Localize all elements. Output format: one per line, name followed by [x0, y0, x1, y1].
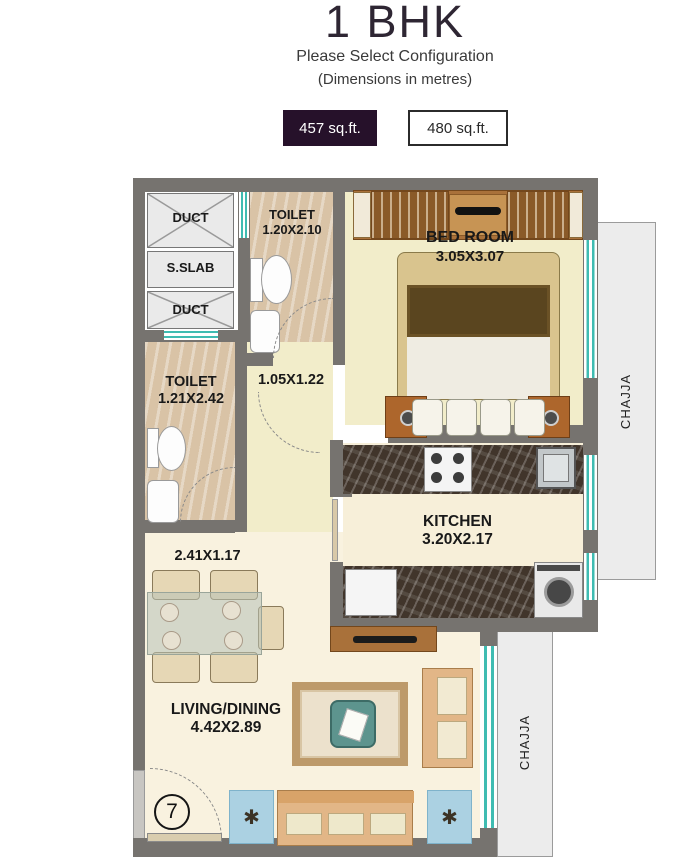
fridge [345, 569, 397, 616]
pillow [446, 399, 477, 436]
toilet-top-bowl [261, 255, 292, 304]
bed-sheet [407, 337, 550, 399]
magazine [338, 708, 369, 742]
plate-icon [162, 631, 181, 650]
toilet-left-washbasin [147, 480, 179, 523]
plate-icon [224, 631, 243, 650]
armchair-cushion [437, 721, 467, 759]
kitchen-door-leaf [332, 499, 338, 561]
plate-icon [160, 603, 179, 622]
wall-living-right-bottom [480, 828, 497, 840]
window-living-right [481, 646, 497, 828]
duct-bottom-label: DUCT [147, 302, 234, 317]
plant-icon: ✱ [441, 805, 458, 830]
sofa-back [278, 791, 414, 803]
window-toilet-top [239, 192, 249, 238]
coffee-table [330, 700, 376, 748]
plant-icon: ✱ [243, 805, 260, 830]
config-subtitle: Please Select Configuration [118, 48, 672, 66]
chajja-right: CHAJJA [596, 222, 656, 580]
wall-toilet-left-right [235, 342, 247, 532]
bedroom-dim: 3.05X3.07 [380, 248, 560, 266]
side-table-left: ✱ [229, 790, 274, 844]
unit-number-badge: 7 [154, 794, 190, 830]
living-label: LIVING/DINING 4.42X2.89 [150, 701, 302, 738]
chajja-bottom-label: CHAJJA [518, 715, 533, 770]
stove [424, 447, 472, 492]
bedroom-label: BED ROOM 3.05X3.07 [380, 229, 560, 266]
burner-icon [431, 453, 442, 464]
toilet-left-dim: 1.21X2.42 [145, 391, 237, 408]
wall-left [133, 178, 145, 772]
burner-icon [453, 453, 464, 464]
sslab-label: S.SLAB [147, 260, 234, 275]
tv-slot [353, 636, 417, 643]
dining-table [147, 592, 262, 655]
side-table-right: ✱ [427, 790, 472, 844]
passage-dim-label: 1.05X1.22 [245, 372, 337, 389]
dimensions-note: (Dimensions in metres) [118, 71, 672, 88]
unit-number: 7 [166, 800, 178, 824]
pillow [412, 399, 443, 436]
window-kitchen-right-1 [584, 455, 597, 530]
toilet-left-bowl [157, 426, 186, 471]
config-option-457-button[interactable]: 457 sq.ft. [283, 110, 377, 146]
kitchen-sink [536, 447, 576, 489]
bed-blanket [407, 285, 550, 337]
entry-door-leaf [147, 833, 222, 842]
wall-toilet-top-right [333, 178, 345, 365]
burner-icon [453, 472, 464, 483]
duct-top-label: DUCT [147, 210, 234, 225]
dining-chair [152, 652, 200, 683]
living-dim: 4.42X2.89 [150, 719, 302, 737]
floor-plan-page: 1 BHK Please Select Configuration (Dimen… [0, 0, 674, 857]
armchair [422, 668, 473, 768]
living-name: LIVING/DINING [150, 701, 302, 719]
wall-living-right-top [480, 632, 497, 646]
sofa-cushion [370, 813, 406, 835]
kitchen-label: KITCHEN 3.20X2.17 [385, 513, 530, 550]
kitchen-name: KITCHEN [385, 513, 530, 531]
sink-basin [543, 454, 569, 482]
toilet-left-label: TOILET 1.21X2.42 [145, 374, 237, 408]
page-title: 1 BHK [118, 0, 672, 48]
nightstand-knob-icon [543, 410, 559, 426]
wardrobe-shelf-left [353, 192, 371, 238]
dining-chair [210, 652, 258, 683]
armchair-cushion [437, 677, 467, 715]
toilet-left-name: TOILET [145, 374, 237, 391]
pillow [514, 399, 545, 436]
window-duct-bottom [164, 329, 218, 340]
toilet-top-name: TOILET [250, 207, 334, 222]
wall-toilet-top-bottom [245, 353, 273, 366]
plate-icon [222, 601, 241, 620]
lobby-dim-label: 2.41X1.17 [160, 548, 255, 565]
toilet-top-dim: 1.20X2.10 [250, 222, 334, 237]
chajja-bottom: CHAJJA [497, 628, 553, 857]
sofa-cushion [328, 813, 364, 835]
window-kitchen-right-2 [584, 553, 597, 600]
toilet-top-label: TOILET 1.20X2.10 [250, 207, 334, 238]
window-bedroom-right [584, 240, 597, 378]
pillow [480, 399, 511, 436]
dresser-slot [455, 207, 501, 215]
chajja-right-label: CHAJJA [619, 373, 634, 428]
config-option-480-button[interactable]: 480 sq.ft. [408, 110, 508, 146]
sofa-cushion [286, 813, 322, 835]
entry-sidelight [133, 770, 145, 842]
kitchen-dim: 3.20X2.17 [385, 531, 530, 549]
tv-console [330, 626, 437, 652]
washing-machine [534, 562, 583, 618]
wardrobe-shelf-right [569, 192, 583, 238]
bedroom-name: BED ROOM [380, 229, 560, 248]
sofa [277, 790, 413, 846]
washer-panel [537, 565, 580, 571]
burner-icon [431, 472, 442, 483]
washer-drum-icon [544, 577, 574, 607]
